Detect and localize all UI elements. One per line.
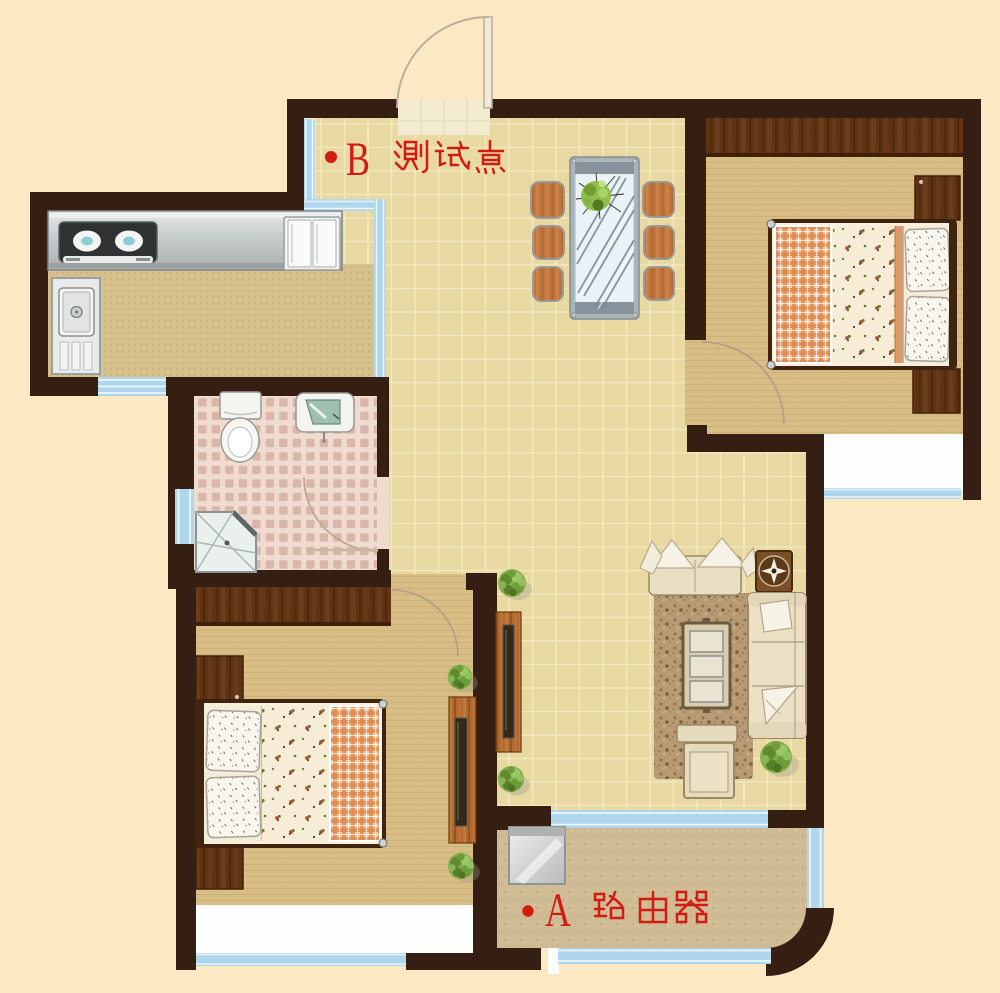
svg-text:B: B	[346, 133, 370, 186]
svg-text:A: A	[545, 884, 571, 937]
